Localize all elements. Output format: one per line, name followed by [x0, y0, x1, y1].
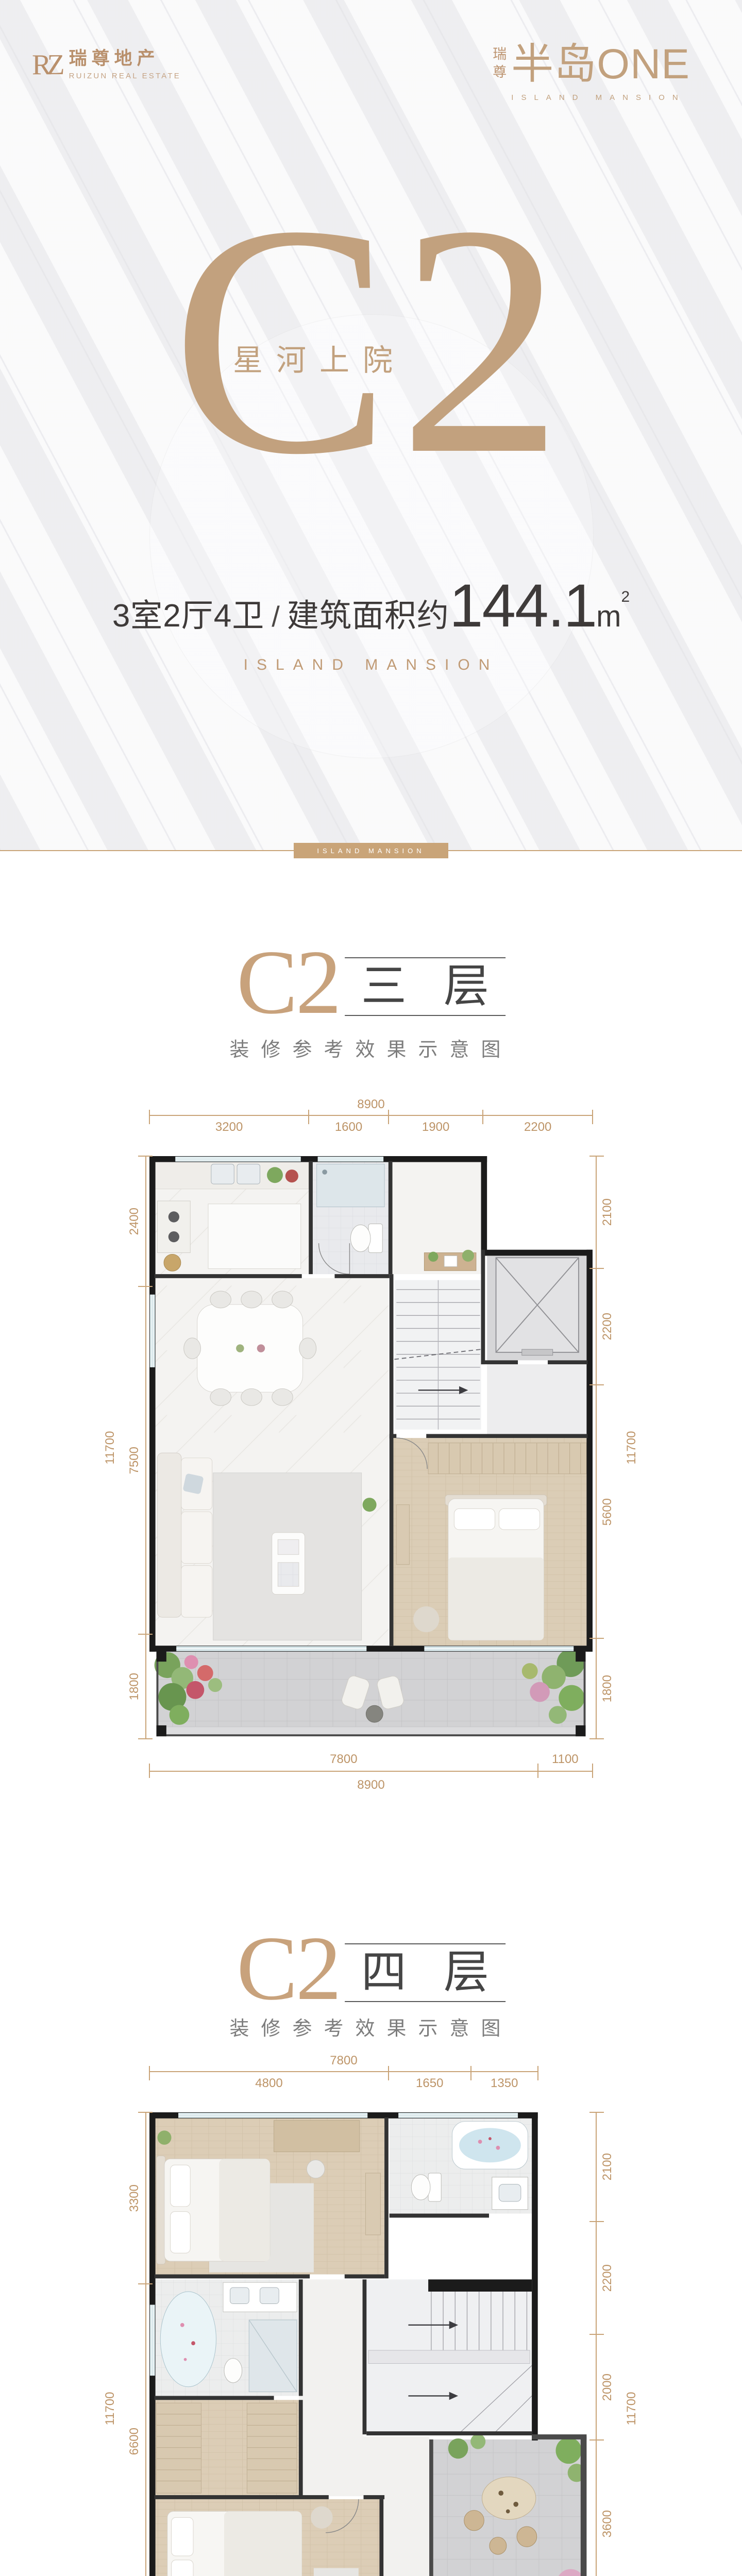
project-logo-tagline: ISLAND MANSION: [511, 94, 690, 101]
section-code: C2: [237, 949, 340, 1016]
dim-seg: 2100: [600, 2153, 615, 2180]
project-logo-name: 半岛ONE: [511, 43, 690, 86]
dim-rail-right: 11700 2100 2200 2000 3600 1800: [596, 2112, 639, 2576]
dim-seg: 2000: [600, 2374, 615, 2401]
room-bedroom-2: [155, 2499, 383, 2576]
dim-rail-bottom: 7800 1100 8900: [149, 1752, 593, 1792]
dim-seg: 5600: [600, 1498, 615, 1526]
dim-seg: 2400: [127, 1208, 142, 1235]
section-header-level3: C2 三层: [237, 949, 505, 1016]
dim-total: 11700: [625, 1431, 639, 1464]
dim-total: 11700: [625, 2392, 639, 2426]
unit-name: 星河上院: [233, 336, 406, 379]
floor-label: 四层: [345, 1944, 505, 2001]
dim-seg: 1650: [389, 2072, 471, 2091]
dim-seg: 7500: [127, 1447, 142, 1474]
header-rule-bottom: [345, 1015, 505, 1016]
spec-area-unit: m2: [596, 600, 630, 633]
dim-seg: 1600: [309, 1116, 389, 1134]
spec-area-label: 建筑面积约: [287, 598, 449, 634]
developer-name: 瑞尊地产: [69, 49, 181, 67]
room-bathroom-1: [313, 1161, 389, 1274]
dim-seg: 3300: [127, 2184, 142, 2212]
header-rule-bottom: [345, 2001, 505, 2002]
dim-rail-left: 11700 3300 6600 1800: [103, 2112, 146, 2576]
dim-seg: 1800: [127, 1673, 142, 1700]
island-mansion-ribbon: ISLAND MANSION: [294, 843, 448, 858]
spec-slash: /: [264, 600, 287, 633]
dim-seg: 1800: [600, 1675, 615, 1702]
spec-rooms: 3室2厅4卫: [112, 598, 264, 634]
room-bathroom-2: [155, 2279, 299, 2396]
terrace: [155, 1649, 585, 1735]
patio: [433, 2434, 586, 2576]
dim-rail-left: 11700 2400 7500 1800: [103, 1156, 146, 1739]
dim-seg: 2200: [600, 2264, 615, 2292]
dim-seg: 7800: [149, 1752, 538, 1771]
dim-total: 8900: [149, 1097, 593, 1112]
dim-total: 7800: [149, 2054, 538, 2068]
dim-seg: 2200: [600, 1313, 615, 1340]
dim-seg: 4800: [149, 2072, 389, 2091]
section-subtitle: 装修参考效果示意图: [229, 2012, 512, 2041]
floor-plan-drawing-level3: [149, 1156, 593, 1739]
hero-background: RZ 瑞尊地产 RUIZUN REAL ESTATE 瑞尊 半岛ONE ISLA…: [0, 0, 742, 851]
dim-seg: 1900: [389, 1116, 483, 1134]
unit-spec-line: 3室2厅4卫/建筑面积约144.1m2: [0, 571, 742, 641]
room-kitchen: [155, 1161, 309, 1274]
room-bedroom: [393, 1438, 588, 1646]
section-code: C2: [237, 1935, 340, 2002]
room-living: [157, 1453, 376, 1640]
dim-seg: 3200: [149, 1116, 309, 1134]
walk-in-closet: [155, 2400, 299, 2496]
project-logo-prefix: 瑞尊: [491, 43, 505, 101]
spec-area-value: 144.1: [449, 572, 596, 640]
floor-plan-drawing-level4: [149, 2112, 593, 2576]
section-header-level4: C2 四层: [237, 1935, 505, 2002]
dim-seg: 1350: [471, 2072, 538, 2091]
room-master-bath: [390, 2117, 532, 2214]
room-entry-hall: [393, 1161, 483, 1274]
rz-monogram-icon: RZ: [32, 50, 61, 79]
project-logo: 瑞尊 半岛ONE ISLAND MANSION: [491, 43, 704, 101]
dim-seg: 2200: [483, 1116, 593, 1134]
dim-total: 11700: [103, 1431, 117, 1464]
room-master-bedroom: [155, 2117, 384, 2275]
dim-total: 8900: [149, 1772, 593, 1792]
dim-seg: 1100: [538, 1752, 593, 1771]
dim-rail-right: 11700 2100 2200 5600 1800: [596, 1156, 639, 1739]
section-subtitle: 装修参考效果示意图: [229, 1033, 512, 1062]
developer-logo: RZ 瑞尊地产 RUIZUN REAL ESTATE: [32, 49, 181, 80]
hero-tagline: ISLAND MANSION: [0, 656, 742, 674]
dim-rail-top: 8900 3200 1600 1900 2200: [149, 1097, 593, 1134]
floor-label: 三层: [345, 958, 505, 1015]
dim-seg: 3600: [600, 2510, 615, 2537]
dim-total: 11700: [103, 2392, 117, 2426]
floor-plan-level3: 8900 3200 1600 1900 2200 11700 2400 7500…: [103, 1097, 639, 1792]
dim-rail-top: 7800 4800 1650 1350: [149, 2054, 538, 2091]
elevator: [487, 1250, 587, 1361]
floor-plan-level4: 7800 4800 1650 1350 11700 3300 6600 1800: [103, 2054, 639, 2576]
developer-tagline: RUIZUN REAL ESTATE: [69, 72, 181, 80]
staircase: [366, 2279, 532, 2434]
dim-seg: 2100: [600, 1198, 615, 1226]
dim-seg: 6600: [127, 2428, 142, 2455]
